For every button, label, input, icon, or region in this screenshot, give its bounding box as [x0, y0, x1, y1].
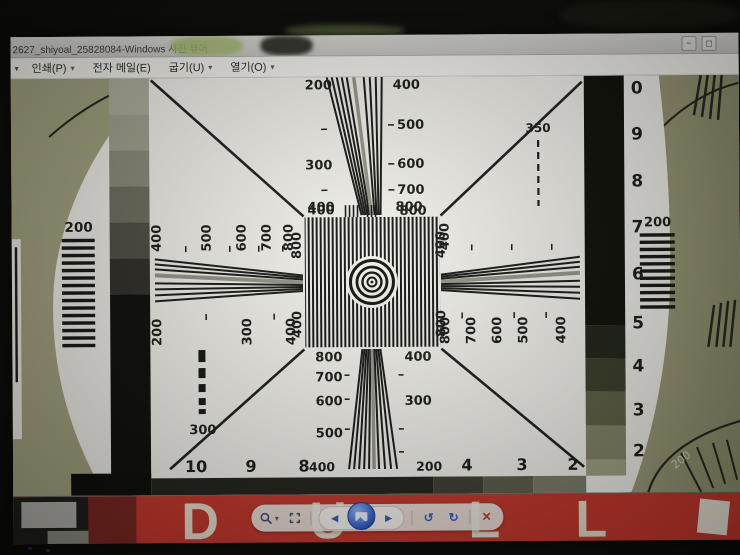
- grating-left-label: 200: [64, 220, 92, 236]
- chevron-down-icon: ▾: [208, 62, 212, 71]
- svg-text:300: 300: [240, 318, 255, 345]
- grating-left-bars: [62, 239, 96, 348]
- svg-text:300: 300: [305, 158, 332, 173]
- menu-print-label: 인쇄(P): [32, 60, 67, 76]
- svg-text:700: 700: [260, 224, 275, 251]
- viewer-bottom-chrome: D U L L ▾: [13, 492, 740, 544]
- photo-viewer-window: 2627_shiyoal_25828084-Windows 사진 뷰어 − ◻ …: [10, 33, 740, 542]
- image-display-area: 200: [11, 75, 740, 496]
- svg-text:400: 400: [284, 318, 299, 345]
- svg-text:4: 4: [461, 455, 472, 474]
- svg-text:500: 500: [516, 316, 531, 343]
- menu-email-label: 전자 메일(E): [93, 59, 151, 75]
- svg-text:600: 600: [316, 394, 343, 409]
- reflection-blob: [560, 0, 740, 30]
- navigation-group: ◄ ►: [319, 505, 405, 530]
- svg-text:400: 400: [438, 223, 453, 250]
- svg-text:0: 0: [631, 78, 643, 98]
- svg-text:9: 9: [631, 124, 643, 144]
- maximize-icon[interactable]: ◻: [701, 36, 716, 51]
- svg-text:400: 400: [393, 78, 420, 93]
- left-edge-pattern: [12, 239, 22, 439]
- magnifier-icon: [259, 511, 273, 525]
- dash-350-label: 350: [525, 121, 550, 135]
- right-number-scale: 0 9 8 7 6 5 4 3 2: [631, 78, 645, 461]
- svg-text:600: 600: [490, 317, 505, 344]
- svg-text:500: 500: [316, 426, 343, 441]
- chevron-down-icon: ▾: [275, 514, 279, 522]
- window-controls: − ◻: [681, 36, 716, 51]
- menu-open-label: 열기(O): [230, 59, 266, 75]
- previous-button[interactable]: ◄: [326, 508, 344, 528]
- svg-text:300: 300: [405, 394, 432, 409]
- grayscale-staircase-right: [584, 75, 626, 475]
- menu-burn[interactable]: 굽기(U) ▾: [160, 59, 222, 75]
- svg-text:5: 5: [632, 313, 644, 333]
- next-button[interactable]: ►: [380, 507, 398, 527]
- svg-text:2: 2: [567, 455, 578, 474]
- menu-print[interactable]: 인쇄(P) ▾: [23, 60, 84, 76]
- svg-text:400: 400: [150, 225, 165, 252]
- svg-text:2: 2: [633, 441, 645, 461]
- chevron-down-icon: ▾: [71, 63, 75, 72]
- reflection-speck: [28, 547, 32, 550]
- fit-arrows-icon: [288, 511, 301, 524]
- svg-text:400: 400: [554, 316, 569, 343]
- svg-text:500: 500: [200, 224, 215, 251]
- svg-text:800: 800: [315, 350, 342, 365]
- cutoff-menu-arrow-icon[interactable]: ▾: [11, 64, 23, 73]
- bullseye: [346, 256, 398, 308]
- svg-text:9: 9: [245, 457, 256, 476]
- dash-300-label: 300: [189, 423, 216, 438]
- svg-text:200: 200: [150, 319, 165, 346]
- grayscale-staircase-left: [109, 78, 151, 478]
- menu-email[interactable]: 전자 메일(E): [84, 59, 160, 75]
- svg-text:500: 500: [397, 118, 424, 133]
- reflection-blob: [170, 36, 242, 56]
- photo-of-monitor: 2627_shiyoal_25828084-Windows 사진 뷰어 − ◻ …: [0, 0, 740, 555]
- svg-text:400: 400: [307, 200, 334, 215]
- grating-right-label: 200: [644, 215, 671, 230]
- test-chart-image: 200: [11, 75, 740, 496]
- svg-text:3: 3: [516, 455, 527, 474]
- svg-text:400: 400: [309, 459, 335, 474]
- delete-button[interactable]: ×: [478, 507, 496, 527]
- svg-text:200: 200: [305, 78, 332, 93]
- rotate-clockwise-button[interactable]: ↻: [445, 507, 463, 527]
- toolbar-separator: [412, 510, 413, 524]
- svg-text:700: 700: [397, 183, 424, 198]
- picture-icon: [356, 512, 368, 521]
- svg-text:800: 800: [282, 224, 297, 251]
- menu-burn-label: 굽기(U): [169, 59, 205, 75]
- svg-text:700: 700: [464, 317, 479, 344]
- slideshow-button[interactable]: [348, 502, 376, 530]
- svg-text:700: 700: [315, 370, 342, 385]
- svg-text:800: 800: [438, 317, 453, 344]
- toolbar-separator: [470, 510, 471, 524]
- title-bar: 2627_shiyoal_25828084-Windows 사진 뷰어 − ◻: [10, 33, 738, 58]
- svg-text:7: 7: [632, 217, 644, 237]
- menu-open[interactable]: 열기(O) ▾: [221, 59, 283, 75]
- svg-text:3: 3: [633, 400, 645, 420]
- wallpaper-letter: D: [181, 492, 219, 544]
- wallpaper-photo-fragment: [21, 502, 76, 528]
- photo-viewer-toolbar: ▾ ◄ ► ↺ ↻ ×: [251, 503, 503, 532]
- reflection-speck: [46, 549, 50, 552]
- wallpaper-letter-fragment: [697, 499, 730, 536]
- reflection-blob: [260, 35, 312, 55]
- minimize-icon[interactable]: −: [681, 36, 696, 51]
- rotate-counterclockwise-button[interactable]: ↺: [420, 507, 438, 527]
- zoom-button[interactable]: ▾: [259, 508, 279, 528]
- wallpaper-letter: L: [575, 492, 607, 544]
- toolbar-separator: [311, 511, 312, 525]
- svg-text:600: 600: [235, 224, 250, 251]
- svg-text:400: 400: [404, 350, 431, 365]
- svg-text:800: 800: [395, 200, 422, 215]
- svg-text:10: 10: [185, 457, 207, 476]
- wallpaper-photo-fragment: [88, 496, 136, 543]
- chevron-down-icon: ▾: [270, 62, 274, 71]
- fit-to-window-button[interactable]: [286, 508, 304, 528]
- svg-text:6: 6: [632, 264, 644, 284]
- svg-text:600: 600: [397, 157, 424, 172]
- svg-text:4: 4: [632, 356, 644, 376]
- svg-text:200: 200: [416, 459, 442, 474]
- svg-text:8: 8: [631, 171, 643, 191]
